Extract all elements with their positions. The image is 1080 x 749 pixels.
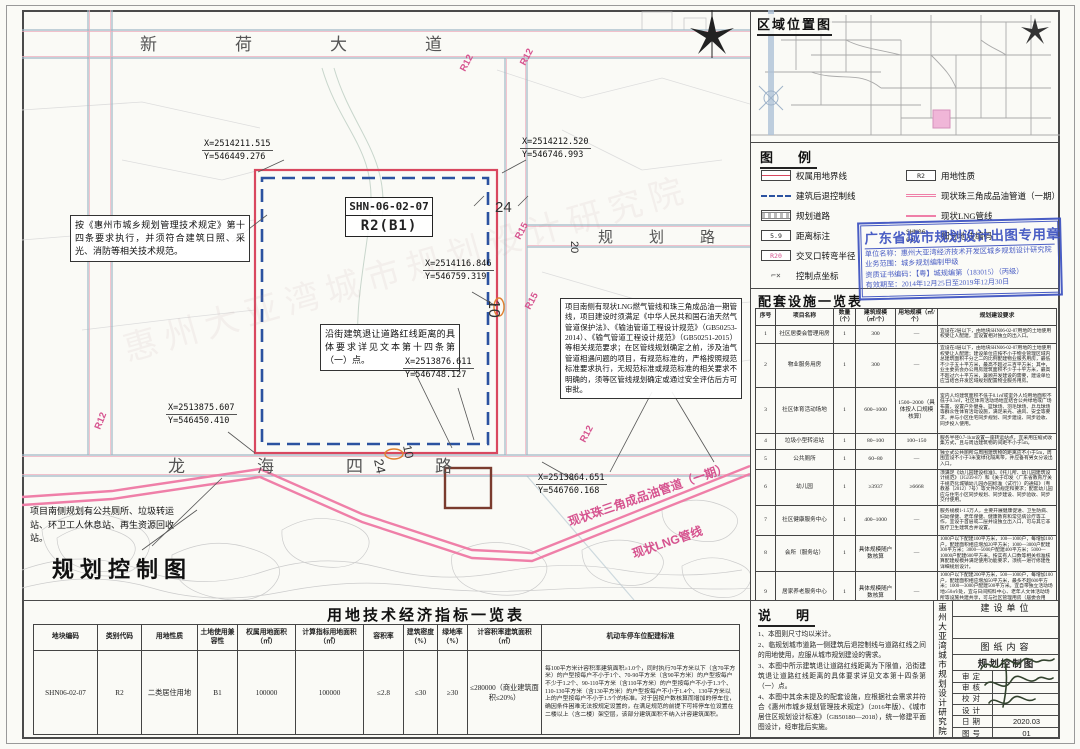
owner-value-blank (953, 617, 1060, 639)
annotation-facilities: 项目南侧规划有公共厕所、垃圾转运站、环卫工人休息站、再生资源回收站。 (30, 505, 180, 546)
title-block: 惠州大亚湾城市规划设计研究院 建设单位 图纸内容 规划控制图 审定审核校对设计日… (933, 600, 1060, 739)
lng-pipeline-icon (906, 210, 936, 221)
facility-qty: 1 (834, 433, 856, 449)
indicator-column-header: 机动车停车位配建标准 (542, 625, 740, 651)
facility-qty: 1 (834, 505, 856, 535)
indicators-title: 用地技术经济指标一览表 (62, 604, 790, 625)
facility-land-area: ≥6668 (896, 469, 938, 505)
facility-name: 垃圾小型转运站 (776, 433, 834, 449)
indicator-column-header: 地块编码 (34, 625, 98, 651)
legend-label: 现状珠三角成品油管道（一期） (941, 190, 1060, 202)
facility-floor-area: 300 (856, 325, 896, 343)
legend-label: 交叉口转弯半径 (796, 250, 856, 262)
legend-label: 规划道路 (796, 210, 830, 222)
facility-requirement: 独立式公共厕所与周围建筑物的距离应不小于5m，周围宜设不小于3米宽绿化隔离带，并… (938, 449, 1057, 469)
indicator-column-header: 计容积率建筑面积（㎡） (468, 625, 542, 651)
facility-name: 幼儿园 (776, 469, 834, 505)
divider (933, 600, 934, 739)
indicator-value: 100000 (296, 651, 364, 735)
notes-title: 说 明 (758, 605, 815, 627)
dimension-label: 24 (371, 458, 389, 475)
facility-qty: 1 (834, 387, 856, 433)
planning-map: 新荷大道 规划路 龙海四路 现状珠三角成品油管道（一期） 现状LNG管线 R12… (22, 10, 750, 600)
facilities-row: 2物业服务用房1300—宜设在4层以下，由地块SHN06-02-07用地的土地使… (756, 343, 1057, 387)
facilities-row: 1社区居委会管理用房1300—宜设在2层以下，由地块SHN06-02-07用地的… (756, 325, 1057, 343)
annotation-regulation: 按《惠州市城乡规划管理技术规定》第十四条要求执行，并须符合建筑日照、采光、消防等… (70, 215, 250, 262)
legend-item: 建筑后退控制线 (761, 189, 901, 202)
coordinate-label: X=2513876.611Y=546748.127 (403, 356, 474, 382)
facility-land-area: — (896, 572, 938, 600)
facility-requirement: 服务半径0.7-1km设置一座转运站点，宜采用压缩式收集方式，且与周边建筑物的间… (938, 433, 1057, 449)
facility-name: 物业服务用房 (776, 343, 834, 387)
titleblock-row: 审核 (953, 683, 1060, 694)
titleblock-row-value: 2020.03 (993, 716, 1060, 726)
coordinate-label: X=2513864.651Y=546760.168 (536, 472, 607, 498)
location-map: 区域位置图 (751, 10, 1060, 142)
indicator-column-header: 用地性质 (142, 625, 198, 651)
facilities-row: 7社区健康服务中心1400~1000—服务规模1-1.5万人，主要开展健康促进、… (756, 505, 1057, 535)
indicator-value: 每100平方米计容积率建筑面积≥1.0个，同时执行70平方米以下（含70平方米）… (542, 651, 740, 735)
divider (22, 600, 1060, 601)
indicator-value: ≥30 (438, 651, 468, 735)
coordinate-x: X=2513876.611 (403, 356, 474, 369)
parcel-code: SHN-06-02-07 (345, 197, 433, 216)
indicator-column-header: 绿地率（%） (438, 625, 468, 651)
facility-land-area: 100~150 (896, 433, 938, 449)
facilities-column-header: 项目名称 (776, 309, 834, 326)
indicator-value: 100000 (238, 651, 296, 735)
radius-label: R12 (93, 411, 110, 431)
facility-name: 会所（服务站） (776, 535, 834, 571)
facility-floor-area: 400~1000 (856, 505, 896, 535)
facility-no: 2 (756, 343, 776, 387)
facility-land-area: — (896, 535, 938, 571)
facilities-row: 6幼儿园1≥3937≥6668须满足《幼儿园建设标准》、《托儿所、幼儿园建筑设计… (756, 469, 1057, 505)
indicator-value: ≤2.8 (364, 651, 404, 735)
coordinate-y: Y=546746.993 (520, 149, 591, 161)
radius-label: R15 (513, 220, 531, 241)
facility-name: 社区健康服务中心 (776, 505, 834, 535)
planning-drawing-sheet: 新荷大道 规划路 龙海四路 现状珠三角成品油管道（一期） 现状LNG管线 R12… (0, 0, 1080, 749)
facilities-row: 5公共厕所160~80—独立式公共厕所与周围建筑物的距离应不小于5m，周围宜设不… (756, 449, 1057, 469)
road-name-south: 龙海四路 (168, 457, 524, 476)
distance-icon: 5.9 (761, 230, 791, 241)
titleblock-row-label: 日期 (953, 716, 993, 726)
parcel-label: SHN-06-02-07 R2(B1) (345, 197, 433, 237)
coordinate-x: X=2514116.846 (423, 258, 494, 271)
indicators-table: 地块编码类别代码用地性质土地使用兼容性权属用地面积（㎡）计算指标用地面积（㎡）容… (33, 624, 740, 735)
facilities-table: 序号项目名称数量（个）建筑规模（㎡/个）用地规模（㎡/个）规划建设要求 1社区居… (755, 308, 1057, 600)
drawing-name: 规划控制图 (953, 655, 1060, 671)
coordinate-label: X=2513875.607Y=546450.410 (166, 402, 237, 428)
note-item: 2、临规划城市道路一侧建筑后退控制线与道路红线之间的用地使用，应服从城市规划建设… (758, 641, 926, 661)
divider (750, 142, 1060, 143)
facility-requirement: 服务规模1-1.5万人，主要开展健康促进、卫生防病、妇幼保健、老年保健、健康教育… (938, 505, 1057, 535)
facility-land-area: — (896, 343, 938, 387)
content-label: 图纸内容 (953, 639, 1060, 656)
indicator-value: R2 (98, 651, 142, 735)
facility-no: 3 (756, 387, 776, 433)
titleblock-row: 审定 (953, 671, 1060, 682)
road-name-north: 新荷大道 (140, 35, 520, 54)
facilities-row: 4垃圾小型转运站180~100100~150服务半径0.7-1km设置一座转运站… (756, 433, 1057, 449)
coordinate-label: X=2514116.846Y=546759.319 (423, 258, 494, 284)
dimension-label: 20 (568, 241, 580, 253)
coordinate-label: X=2514211.515Y=546449.276 (202, 138, 273, 164)
titleblock-row: 日期2020.03 (953, 716, 1060, 727)
radius-icon: R20 (761, 250, 791, 261)
note-item: 1、本图则尺寸均以米计。 (758, 630, 926, 640)
facility-floor-area: 60~80 (856, 449, 896, 469)
map-title: 规划控制图 (52, 552, 192, 584)
facility-name: 社区居委会管理用房 (776, 325, 834, 343)
facility-no: 9 (756, 572, 776, 600)
facility-floor-area: ≥3937 (856, 469, 896, 505)
facility-floor-area: 80~100 (856, 433, 896, 449)
facility-land-area: 1500~2000（具体按人口规模核算） (896, 387, 938, 433)
coordinate-y: Y=546760.168 (536, 485, 607, 497)
facility-no: 4 (756, 433, 776, 449)
facility-requirement: 1000户以下配建200平方米，500—1000户，每增加100户，配建面积相应… (938, 572, 1057, 600)
indicator-column-header: 计算指标用地面积（㎡） (296, 625, 364, 651)
indicator-column-header: 权属用地面积（㎡） (238, 625, 296, 651)
facility-land-area: — (896, 505, 938, 535)
facility-floor-area: 具体规模随户数核算 (856, 572, 896, 600)
facility-requirement: 室内人均建筑面积不低于0.1㎡或室外人均用地面积不低于0.3㎡，社区体育活动场地… (938, 387, 1057, 433)
titleblock-row: 设计 (953, 705, 1060, 716)
facility-name: 公共厕所 (776, 449, 834, 469)
dimension-label: 10 (485, 300, 502, 318)
titleblock-row: 校对 (953, 694, 1060, 705)
legend-item: 规划道路 (761, 209, 901, 222)
facilities-row: 8会所（服务站）1具体规模随户数核算—1000户以下配建100平方米，100—1… (756, 535, 1057, 571)
legend-label: 控制点坐标 (796, 270, 839, 282)
legend-label: 权属用地界线 (796, 170, 847, 182)
facility-qty: 1 (834, 325, 856, 343)
setback-line-icon (761, 190, 791, 201)
titleblock-row-label: 审定 (953, 671, 993, 681)
indicator-value: SHN06-02-07 (34, 651, 98, 735)
panel-divider (750, 10, 751, 739)
facility-no: 5 (756, 449, 776, 469)
location-map-title: 区域位置图 (757, 14, 832, 36)
road-name-east: 规划路 (598, 229, 750, 246)
facilities-column-header: 建筑规模（㎡/个） (856, 309, 896, 326)
institute-name: 惠州大亚湾城市规划设计研究院 (933, 600, 953, 739)
legend-label: 建筑后退控制线 (796, 190, 856, 202)
titleblock-row-value (993, 683, 1060, 693)
facility-qty: 1 (834, 469, 856, 505)
titleblock-row-value: 01 (993, 728, 1060, 739)
facilities-row: 3社区体育活动场地1600~10001500~2000（具体按人口规模核算）室内… (756, 387, 1057, 433)
legend-item: R2用地性质 (906, 169, 1058, 182)
facility-no: 6 (756, 469, 776, 505)
titleblock-row: 图号01 (953, 728, 1060, 739)
titleblock-row-value (993, 705, 1060, 715)
facility-qty: 1 (834, 535, 856, 571)
dimension-label: 24 (495, 199, 512, 216)
landuse-icon: R2 (906, 170, 936, 181)
note-item: 3、本图中所示建筑退让道路红线距离为下限值，沿街建筑退让道路红线距离的具体要求详… (758, 662, 926, 692)
facilities-row: 9居家养老服务中心1具体规模随户数核算—1000户以下配建200平方米，500—… (756, 572, 1057, 600)
coordinate-y: Y=546449.276 (202, 151, 273, 163)
radius-label: R12 (578, 424, 596, 445)
titleblock-row-label: 校对 (953, 694, 993, 704)
indicator-column-header: 类别代码 (98, 625, 142, 651)
control-point-icon: ⌐× (761, 270, 791, 281)
coordinate-x: X=2513864.651 (536, 472, 607, 485)
facility-land-area: — (896, 449, 938, 469)
facility-requirement: 须满足《幼儿园建设标准》、《托儿所、幼儿园建筑设计规范》（JGJ39-87）和《… (938, 469, 1057, 505)
coordinate-x: X=2513875.607 (166, 402, 237, 415)
facility-name: 社区体育活动场地 (776, 387, 834, 433)
facility-qty: 1 (834, 449, 856, 469)
facility-land-area: — (896, 325, 938, 343)
legend-title: 图 例 (760, 147, 817, 169)
facility-no: 7 (756, 505, 776, 535)
boundary-line-icon (761, 170, 791, 181)
coordinate-x: X=2514212.520 (520, 136, 591, 149)
indicator-column-header: 容积率 (364, 625, 404, 651)
titleblock-row-label: 图号 (953, 728, 993, 739)
annotation-pipeline: 项目南侧有现状LNG燃气管线和珠三角成品油一期管线，项目建设时须满足《中华人民共… (560, 298, 742, 399)
indicator-value: ≤280000（商业建筑面积≤20%） (468, 651, 542, 735)
indicator-value: B1 (198, 651, 238, 735)
indicator-column-header: 建筑密度（%） (404, 625, 438, 651)
compass-icon (690, 10, 734, 58)
legend-item: 现状珠三角成品油管道（一期） (906, 189, 1058, 202)
titleblock-row-value (993, 671, 1060, 681)
facilities-column-header: 数量（个） (834, 309, 856, 326)
approval-stamp: 广东省城市规划设计出图专用章 单位名称：惠州大亚湾经济技术开发区城乡规划设计研究… (857, 218, 1063, 301)
indicator-value: ≤30 (404, 651, 438, 735)
coordinate-y: Y=546748.127 (403, 369, 474, 381)
lng-pipeline-label: 现状LNG管线 (630, 523, 704, 561)
coordinate-y: Y=546759.319 (423, 271, 494, 283)
facilities-column-header: 序号 (756, 309, 776, 326)
note-item: 4、本图中其余未提及的配套设施，应根据社会需求并符合《惠州市城乡规划管理技术规定… (758, 693, 926, 733)
indicators-section: 用地技术经济指标一览表 地块编码类别代码用地性质土地使用兼容性权属用地面积（㎡）… (22, 600, 750, 739)
legend-item: 权属用地界线 (761, 169, 901, 182)
coordinate-x: X=2514211.515 (202, 138, 273, 151)
legend-label: 用地性质 (941, 170, 975, 182)
facility-no: 1 (756, 325, 776, 343)
facilities-column-header: 用地规模（㎡/个） (896, 309, 938, 326)
notes-section: 说 明 1、本图则尺寸均以米计。2、临规划城市道路一侧建筑后退控制线与道路红线之… (751, 600, 933, 739)
oil-pipeline-icon (906, 190, 936, 201)
coordinate-y: Y=546450.410 (166, 415, 237, 427)
facilities-section: 配套设施一览表 序号项目名称数量（个）建筑规模（㎡/个）用地规模（㎡/个）规划建… (751, 288, 1060, 600)
facility-qty: 1 (834, 343, 856, 387)
titleblock-row-value (993, 694, 1060, 704)
facility-name: 居家养老服务中心 (776, 572, 834, 600)
facility-requirement: 1000户以下配建100平方米，100—1000户，每增加100户，配建面积相应… (938, 535, 1057, 571)
facility-requirement: 宜设在2层以下，由地块SHN06-02-07用地的土地使用权受让人配建，宜设置相… (938, 325, 1057, 343)
facility-floor-area: 300 (856, 343, 896, 387)
indicator-value: 二类居住用地 (142, 651, 198, 735)
coordinate-label: X=2514212.520Y=546746.993 (520, 136, 591, 162)
radius-label: R12 (458, 53, 476, 74)
facility-requirement: 宜设在4层以下，由地块SHN06-02-07用地的土地使用权受让人配建；建设单位… (938, 343, 1057, 387)
parcel-zoning: R2(B1) (345, 216, 433, 237)
titleblock-row-label: 设计 (953, 705, 993, 715)
radius-label: R12 (518, 47, 536, 68)
owner-label: 建设单位 (953, 600, 1060, 617)
facility-floor-area: 600~1000 (856, 387, 896, 433)
legend-label: 距离标注 (796, 230, 830, 242)
indicator-column-header: 土地使用兼容性 (198, 625, 238, 651)
facility-floor-area: 具体规模随户数核算 (856, 535, 896, 571)
facility-qty: 1 (834, 572, 856, 600)
planned-road-icon (761, 210, 791, 221)
facility-no: 8 (756, 535, 776, 571)
subject-parcel-highlight (933, 110, 950, 128)
titleblock-row-label: 审核 (953, 683, 993, 693)
facilities-column-header: 规划建设要求 (938, 309, 1057, 326)
